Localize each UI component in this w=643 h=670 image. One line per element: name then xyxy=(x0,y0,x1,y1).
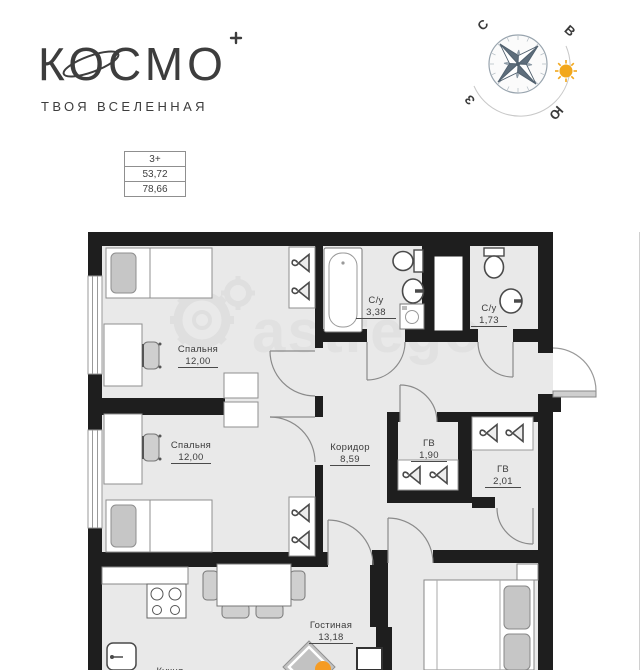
floorplan-page: КОСМО ТВОЯ ВСЕЛЕННАЯ xyxy=(0,0,643,670)
chair xyxy=(143,434,162,461)
wardrobe1-fittings xyxy=(398,460,458,490)
built-in-cabinet xyxy=(224,373,258,398)
closet-strip xyxy=(289,497,315,556)
stove-icon xyxy=(147,584,186,618)
kitchen-counter xyxy=(102,567,188,584)
svg-text:1,73: 1,73 xyxy=(479,315,499,326)
ventilation-shaft xyxy=(434,256,463,331)
svg-text:8,59: 8,59 xyxy=(340,454,360,465)
svg-text:Спальня: Спальня xyxy=(171,440,211,451)
desk xyxy=(104,414,142,484)
svg-text:2,01: 2,01 xyxy=(493,476,513,487)
nightstand xyxy=(517,564,538,580)
window-bedroom2 xyxy=(88,430,102,528)
desk xyxy=(104,324,142,386)
svg-text:3,38: 3,38 xyxy=(366,307,386,318)
tv-cabinet xyxy=(357,648,382,670)
toilet-icon xyxy=(393,250,423,272)
bed-pillow xyxy=(504,634,530,670)
wardrobe2-fittings xyxy=(472,417,533,450)
kitchen-sink-icon xyxy=(107,643,136,670)
svg-text:Гостиная: Гостиная xyxy=(310,620,352,631)
svg-text:ГВ: ГВ xyxy=(423,438,435,449)
svg-text:С/у: С/у xyxy=(368,295,383,306)
svg-text:1,90: 1,90 xyxy=(419,450,439,461)
kitchen-label: Кухня xyxy=(157,666,184,670)
closet-strip xyxy=(289,247,315,308)
dining-table xyxy=(217,564,291,606)
master-bedroom-furniture xyxy=(424,564,538,670)
svg-text:ГВ: ГВ xyxy=(497,464,509,475)
chair xyxy=(143,342,162,369)
svg-text:С/у: С/у xyxy=(481,303,496,314)
floor-plan: astrego xyxy=(0,0,643,670)
svg-text:Коридор: Коридор xyxy=(330,442,370,453)
bed-pillow xyxy=(111,253,136,293)
washing-machine-icon xyxy=(400,304,424,329)
window-bedroom1 xyxy=(88,276,102,374)
entrance-threshold xyxy=(538,353,553,398)
sink-icon xyxy=(500,289,522,313)
bed-pillow xyxy=(504,586,530,629)
svg-text:Спальня: Спальня xyxy=(178,344,218,355)
toilet-icon xyxy=(484,248,504,278)
svg-text:12,00: 12,00 xyxy=(185,356,210,367)
svg-text:13,18: 13,18 xyxy=(318,632,343,643)
bed-pillow xyxy=(111,505,136,547)
svg-text:12,00: 12,00 xyxy=(178,452,203,463)
entrance-door xyxy=(553,348,596,397)
sink-icon xyxy=(403,279,424,303)
built-in-cabinet xyxy=(224,402,258,427)
